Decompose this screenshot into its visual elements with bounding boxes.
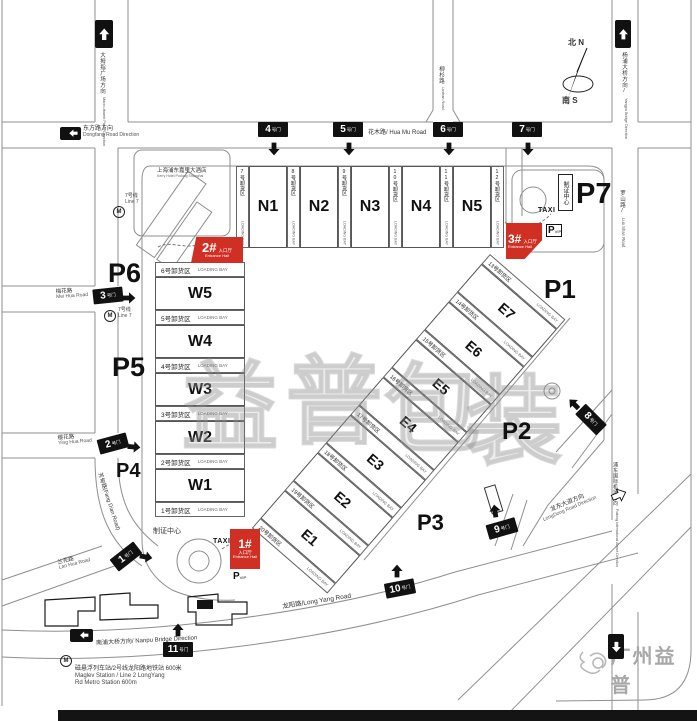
road-lushan-cn: 柳杉路 (437, 66, 445, 84)
thumb-plaza-arrow-icon (95, 20, 113, 48)
roundabout-south (177, 539, 221, 583)
arrow-glyph (617, 23, 630, 45)
vip-sub: VIP (240, 575, 246, 580)
entrance-hall-1: 1# 入口厅 Entrance Hall (230, 529, 260, 569)
metro-icon-hotel: M (113, 206, 125, 218)
gate-6-arrow-icon (441, 141, 457, 157)
parking-area-p5: P5 (112, 352, 145, 383)
parking-area-p4: P4 (116, 460, 140, 483)
gate-4-arrow-icon (266, 141, 282, 157)
compass-south-label: 南 S (562, 96, 578, 105)
gate-3: 3号门 (92, 286, 123, 304)
arrow-glyph (97, 23, 111, 45)
parking-area-p7: P7 (576, 178, 611, 211)
loading-bay-label-en: LOADING BAY (445, 221, 449, 245)
direction-yangpu-en: Yangpu Bridge Direction (620, 98, 628, 139)
gate-number: 11 (168, 644, 179, 655)
gate-11: 11号门 (163, 642, 193, 657)
loading-bay-label-en: LOADING BAY (343, 221, 347, 245)
gate-suffix: 号门 (347, 127, 356, 133)
north-halls-block: 7号卸货区LOADING BAYN18号卸货区LOADING BAYN29号卸货… (236, 166, 508, 248)
compass-icon (563, 48, 593, 98)
gate-number: 3 (100, 290, 107, 302)
exhibition-hall: N3 (351, 166, 389, 248)
maglev-cn: 磁悬浮列车站/2号线龙阳路地铁站 600米 (75, 666, 182, 673)
direction-thumb-plaza-cn: 大拇指广场方向 (98, 52, 106, 94)
road-huamu: 花木路/ Hua Mu Road (368, 130, 426, 137)
parking-area-p2: P2 (502, 418, 531, 446)
loading-bay-strip: 7号卸货区LOADING BAY (236, 166, 249, 248)
brand-logo: 广州益普 (575, 640, 697, 698)
road-luoshan-en: Luo Shan Road (618, 218, 626, 247)
loading-bay-label-en: LOADING BAY (496, 221, 500, 245)
exhibition-hall: W3 (155, 373, 245, 406)
loading-bay-label-cn: 3号卸货区 (161, 409, 191, 419)
loading-bay-strip: 11号卸货区LOADING BAY (440, 166, 453, 248)
loading-bay-label-en: LOADING BAY (394, 221, 398, 245)
vip-p: P (233, 571, 240, 582)
loading-bay-label-cn: 8号卸货区 (290, 169, 297, 196)
gate-suffix: 号门 (272, 127, 281, 133)
road-meihua: 梅花路 Mei Hua Road (56, 287, 89, 301)
west-halls-block: 6号卸货区LOADING BAYW55号卸货区LOADING BAYW44号卸货… (155, 262, 245, 517)
exhibition-hall: N2 (300, 166, 338, 248)
maglev-en2: Rd Metro Station 600m (75, 680, 182, 687)
cert-center-north: 制证中心 (558, 174, 573, 211)
entrance-1-en: Entrance Hall (233, 555, 257, 560)
line7-label-gate3: 7号线 Line 7 (118, 308, 132, 320)
maglev-note: 磁悬浮列车站/2号线龙阳路地铁站 600米 Maglev Station / L… (75, 666, 182, 687)
loading-bay-label-cn: 2号卸货区 (161, 457, 191, 467)
arrow-glyph (610, 637, 623, 657)
loading-bay-strip: 9号卸货区LOADING BAY (338, 166, 351, 248)
road-lushan-en: Lushan Road (437, 87, 445, 110)
loading-bay-label-cn: 1号卸货区 (161, 505, 191, 515)
loading-bay-label-en: LOADING BAY (198, 411, 228, 416)
direction-yangpu: 杨浦大桥方向/ Yangpu Bridge Direction (620, 52, 628, 138)
loading-bay-strip: 1号卸货区LOADING BAY (155, 502, 245, 517)
bottom-divider-bar (58, 710, 697, 721)
taxi-stand-north: TAXI (538, 207, 555, 214)
dashed-path-entrance2 (158, 244, 200, 247)
vip-parking-south: PVIP (233, 572, 246, 582)
hotel-label: 上海浦东嘉里大酒店 Kerry Hotel Pudong Shanghai (157, 168, 207, 178)
gate-suffix: 号门 (123, 549, 134, 559)
loading-bay-label-cn: 5号卸货区 (161, 313, 191, 323)
road-lushan: 柳杉路 Lushan Road (437, 66, 445, 110)
arrow-glyph (76, 626, 86, 644)
exhibition-hall: W5 (155, 277, 245, 310)
metro-icon-gate3: M (104, 310, 116, 322)
cert-center-south: 制证中心 (153, 528, 181, 536)
line7-en: Line 7 (125, 200, 139, 206)
gate-suffix: 号门 (500, 523, 510, 531)
gate-suffix: 号门 (526, 127, 535, 133)
arrow-glyph (65, 125, 75, 142)
loading-bay-strip: 5号卸货区LOADING BAY (155, 310, 245, 325)
dongfang-arrow-icon (60, 127, 81, 140)
direction-dongfang: 东方路方向 Dongfang Road Direction (83, 126, 139, 139)
direction-yangpu-cn: 杨浦大桥方向/ (620, 52, 628, 95)
compass-north-label: 北 N (568, 38, 584, 47)
entrance-2-en: Entrance Hall (205, 254, 229, 259)
direction-airport-en: Pudong International Airport Direction (612, 509, 619, 567)
loading-bay-label-en: LOADING BAY (198, 507, 228, 512)
exhibition-hall: W2 (155, 421, 245, 454)
entrance-hall-2: 2# 入口厅 Entrance Hall (191, 237, 243, 263)
loading-bay-strip: 4号卸货区LOADING BAY (155, 358, 245, 373)
direction-airport: 浦东国际机场方向 Pudong International Airport Di… (612, 462, 619, 567)
loading-bay-label-cn: 10号卸货区 (392, 169, 399, 202)
expo-center-map: 益普包装 北 N 南 S 大拇指广场方向 Macro-thumb Plaza D… (0, 0, 697, 721)
exhibition-hall: W1 (155, 469, 245, 502)
gate-suffix: 号门 (401, 584, 411, 592)
loading-bay-label-en: LOADING BAY (198, 315, 228, 320)
direction-dongfang-en: Dongfang Road Direction (83, 133, 139, 139)
loading-bay-label-en: LOADING BAY (198, 363, 228, 368)
vip-parking-north: PVIP (546, 224, 562, 237)
gate-number: 6 (440, 124, 446, 135)
gate-suffix: 号门 (447, 127, 456, 133)
loading-bay-label-cn: 6号卸货区 (161, 265, 191, 275)
line7-en: Line 7 (118, 314, 132, 320)
loading-bay-label-cn: 9号卸货区 (341, 169, 348, 196)
loading-bay-strip: 8号卸货区LOADING BAY (287, 166, 300, 248)
vip-sub: VIP (555, 229, 561, 234)
loading-bay-strip: 3号卸货区LOADING BAY (155, 406, 245, 421)
airport-arrow-icon (608, 634, 624, 659)
gate-7: 7号门 (512, 122, 542, 137)
gate-4: 4号门 (258, 122, 288, 137)
metro-icon-maglev: M (60, 655, 72, 667)
gate-7-arrow-icon (520, 141, 536, 157)
nanpu-arrow-icon (70, 629, 93, 642)
gate-11-arrow-icon (170, 622, 186, 638)
parking-area-p3: P3 (417, 510, 444, 536)
exhibition-hall: N4 (402, 166, 440, 248)
road-luoshan-cn: 罗山路/ (618, 190, 626, 215)
taxi-stand-south: TAXI (213, 538, 230, 545)
road-luoshan: 罗山路/ Luo Shan Road (618, 190, 626, 247)
loading-bay-label-en: LOADING BAY (198, 459, 228, 464)
gate-number: 4 (265, 124, 271, 135)
gate-9-arrow-icon (486, 502, 504, 520)
roundabout-east (544, 383, 560, 399)
gate-number: 10 (389, 583, 402, 596)
gate-suffix: 号门 (111, 439, 121, 447)
line7-label-hotel: 7号线 Line 7 (125, 194, 139, 206)
yangpu-arrow-icon (615, 20, 631, 48)
gate-number: 7 (519, 124, 525, 135)
exhibition-hall: N1 (249, 166, 287, 248)
parking-area-p6: P6 (108, 258, 141, 289)
exhibition-hall: N5 (453, 166, 491, 248)
parking-area-p1: P1 (544, 274, 576, 305)
gate-5-arrow-icon (341, 141, 357, 157)
gate-6: 6号门 (433, 122, 463, 137)
loading-bay-strip: 12号卸货区LOADING BAY (491, 166, 504, 248)
loading-bay-strip: 2号卸货区LOADING BAY (155, 454, 245, 469)
loading-bay-strip: 10号卸货区LOADING BAY (389, 166, 402, 248)
gate-suffix: 号门 (588, 417, 599, 428)
loading-bay-label-cn: 4号卸货区 (161, 361, 191, 371)
loading-bay-label-en: LOADING BAY (198, 267, 228, 272)
entrance-1-number: 1# (238, 538, 251, 550)
gate-number: 5 (340, 124, 346, 135)
loading-bay-label-cn: 7号卸货区 (239, 169, 246, 196)
entrance-3-number: 3# (508, 233, 521, 245)
maglev-en1: Maglev Station / Line 2 LongYang (75, 673, 182, 680)
gate-10-arrow-icon (389, 563, 405, 579)
exhibition-hall: W4 (155, 325, 245, 358)
hotel-en: Kerry Hotel Pudong Shanghai (157, 174, 207, 178)
loading-bay-label-cn: 11号卸货区 (443, 169, 450, 202)
loading-bay-strip: 6号卸货区LOADING BAY (155, 262, 245, 277)
gate-5: 5号门 (333, 122, 363, 137)
loading-bay-label-cn: 12号卸货区 (494, 169, 501, 202)
vip-p: P (548, 225, 555, 236)
gate-suffix: 号门 (106, 292, 116, 299)
gate-suffix: 号门 (179, 647, 188, 653)
entrance-3-en: Entrance Hall (508, 245, 532, 250)
loading-bay-label-en: LOADING BAY (292, 221, 296, 245)
building-filled (197, 600, 213, 609)
